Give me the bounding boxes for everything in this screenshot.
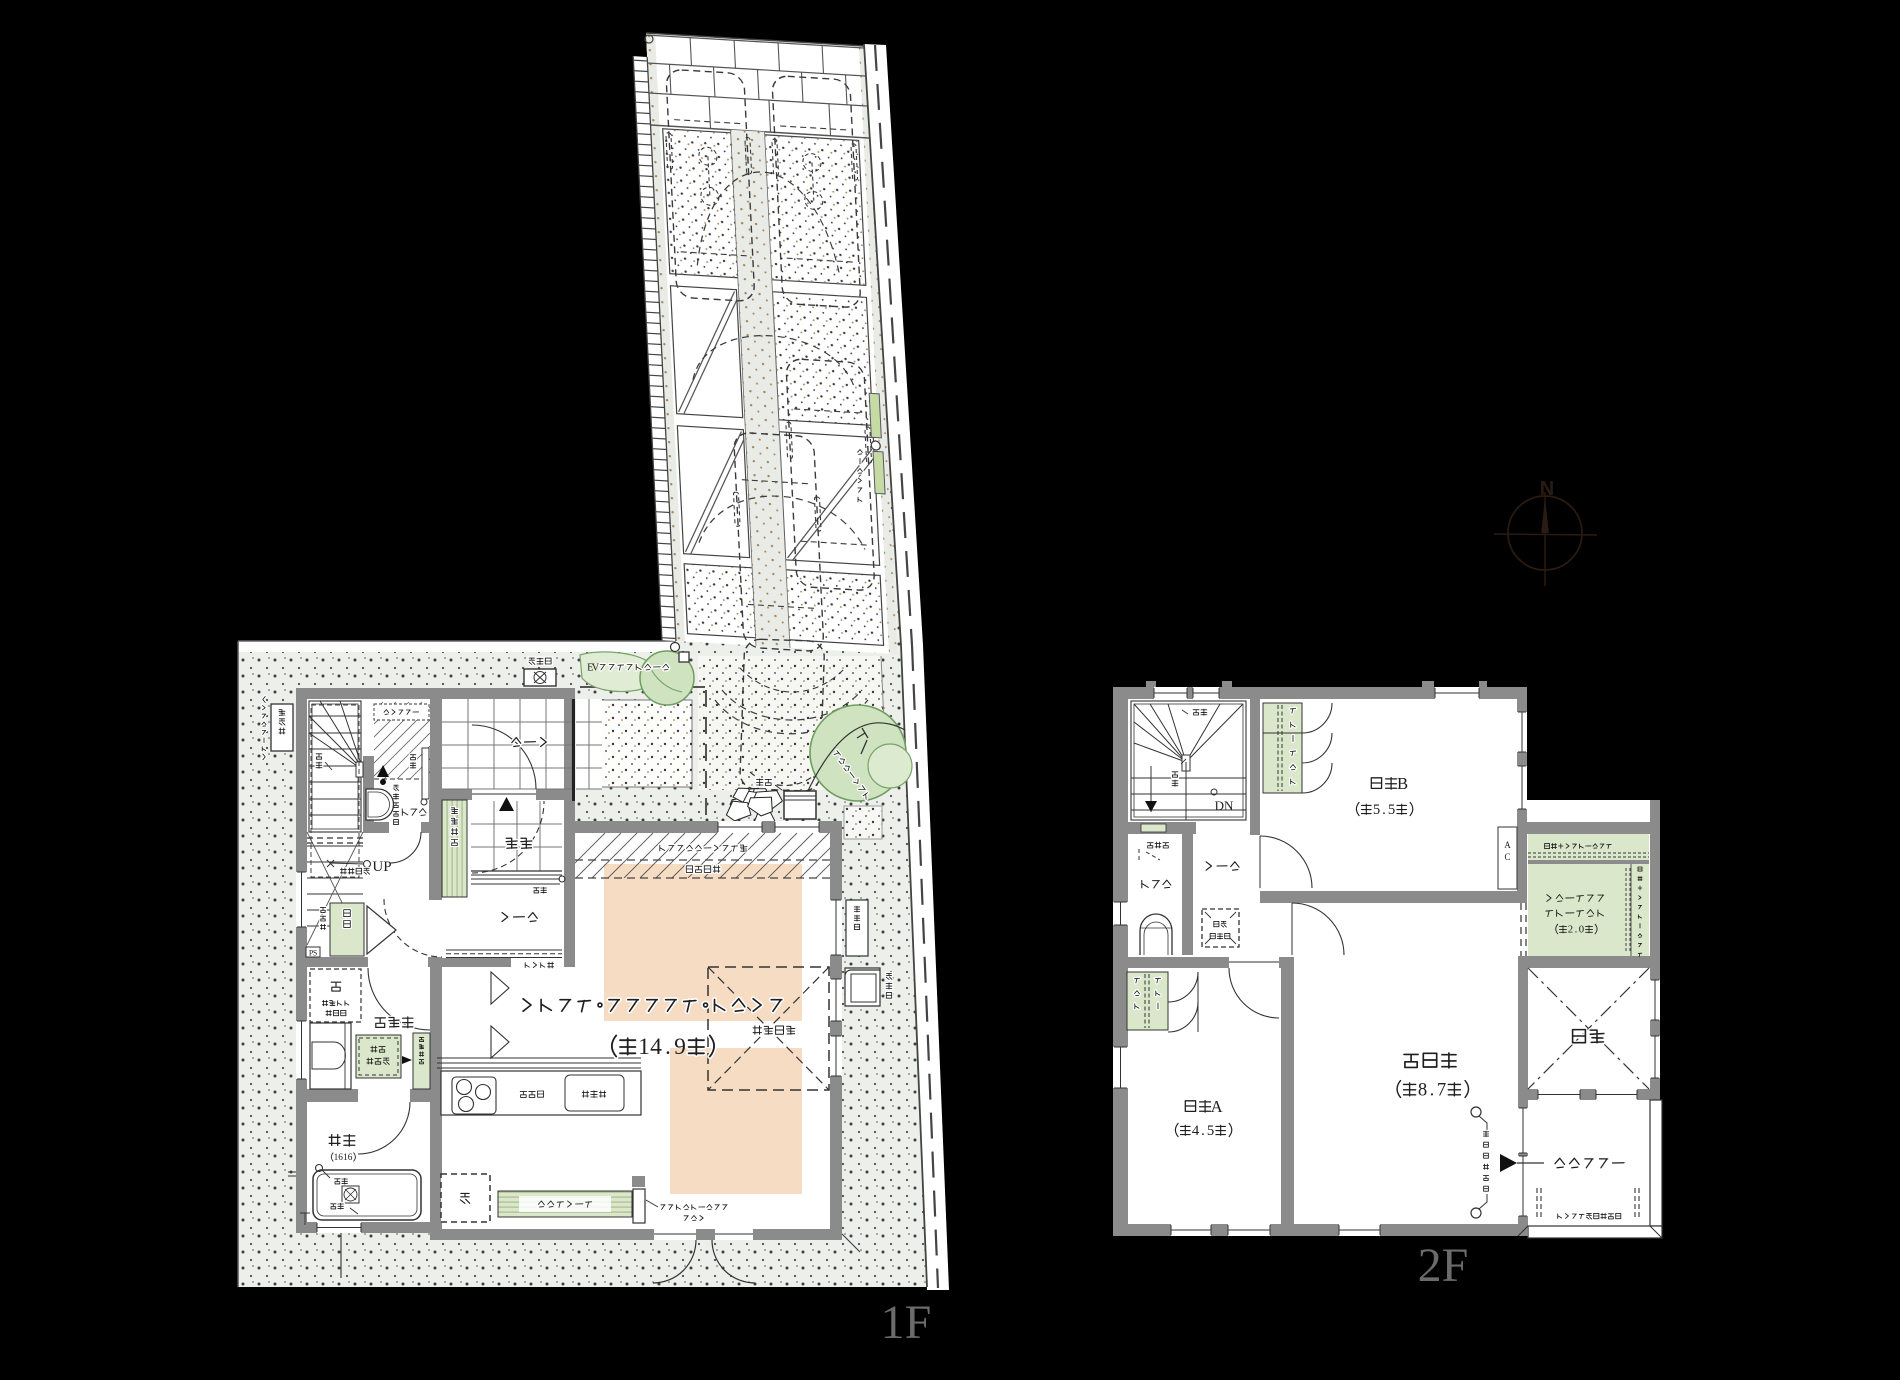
svg-text:A: A — [1211, 1097, 1223, 1116]
svg-text:5: 5 — [1207, 1123, 1214, 1139]
svg-text:V: V — [592, 663, 600, 674]
svg-text:0: 0 — [1579, 924, 1584, 936]
svg-text:8: 8 — [1418, 1080, 1427, 1101]
svg-text:S: S — [313, 949, 317, 958]
svg-text:4: 4 — [650, 1034, 662, 1060]
svg-text:.: . — [1382, 802, 1386, 818]
svg-text:.: . — [1430, 1080, 1435, 1101]
svg-text:.: . — [1201, 1123, 1205, 1139]
svg-text:B: B — [1397, 774, 1408, 793]
svg-text:.: . — [1575, 924, 1578, 936]
svg-text:1F: 1F — [881, 1296, 932, 1349]
svg-text:6: 6 — [348, 1153, 353, 1163]
svg-text:.: . — [665, 1034, 671, 1060]
svg-text:5: 5 — [1373, 802, 1380, 818]
svg-text:1: 1 — [638, 1034, 650, 1060]
svg-text:2F: 2F — [1418, 1239, 1469, 1292]
svg-text:7: 7 — [1437, 1080, 1446, 1101]
svg-text:DN: DN — [1215, 798, 1234, 813]
svg-text:9: 9 — [674, 1034, 686, 1060]
svg-text:UP: UP — [372, 859, 391, 875]
svg-text:A: A — [1504, 840, 1511, 850]
svg-text:5: 5 — [1388, 802, 1395, 818]
svg-text:C: C — [1504, 852, 1510, 862]
svg-text:2: 2 — [1568, 924, 1573, 936]
svg-text:4: 4 — [1192, 1123, 1200, 1139]
svg-text:N: N — [1540, 478, 1554, 500]
